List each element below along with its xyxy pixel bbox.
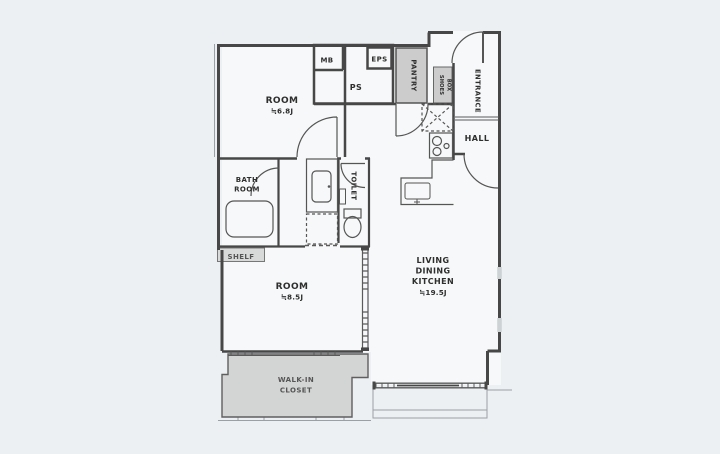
svg-text:KITCHEN: KITCHEN xyxy=(412,277,454,286)
ps-label: PS xyxy=(350,83,362,92)
toilet-label: TOILET xyxy=(350,172,358,201)
svg-text:BATH: BATH xyxy=(236,176,258,184)
svg-text:BOX: BOX xyxy=(446,79,452,91)
svg-text:CLOSET: CLOSET xyxy=(280,387,312,395)
svg-text:SHOES: SHOES xyxy=(438,75,444,95)
svg-text:≒6.8J: ≒6.8J xyxy=(271,107,294,116)
svg-text:ROOM: ROOM xyxy=(276,282,309,292)
svg-text:ROOM: ROOM xyxy=(234,186,260,194)
walk-in-closet-area xyxy=(222,354,368,417)
entrance-label: ENTRANCE xyxy=(474,69,482,113)
pantry-label: PANTRY xyxy=(410,59,418,91)
svg-text:LIVING: LIVING xyxy=(417,256,450,265)
shelf-label: SHELF xyxy=(228,253,255,261)
floor-plan: ROOM ≒6.8J ROOM ≒8.5J LIVING DINING KITC… xyxy=(0,0,720,454)
svg-text:DINING: DINING xyxy=(416,267,451,276)
eps-label: EPS xyxy=(371,56,387,64)
floor-plan-canvas: ROOM ≒6.8J ROOM ≒8.5J LIVING DINING KITC… xyxy=(0,0,720,454)
hall-label: HALL xyxy=(465,134,490,143)
svg-text:≒8.5J: ≒8.5J xyxy=(281,293,304,302)
svg-text:WALK-IN: WALK-IN xyxy=(278,376,314,384)
svg-text:ROOM: ROOM xyxy=(266,96,299,106)
bathroom-label: BATH ROOM xyxy=(234,176,260,194)
mb-label: MB xyxy=(320,57,333,65)
svg-text:≒19.5J: ≒19.5J xyxy=(419,288,447,297)
